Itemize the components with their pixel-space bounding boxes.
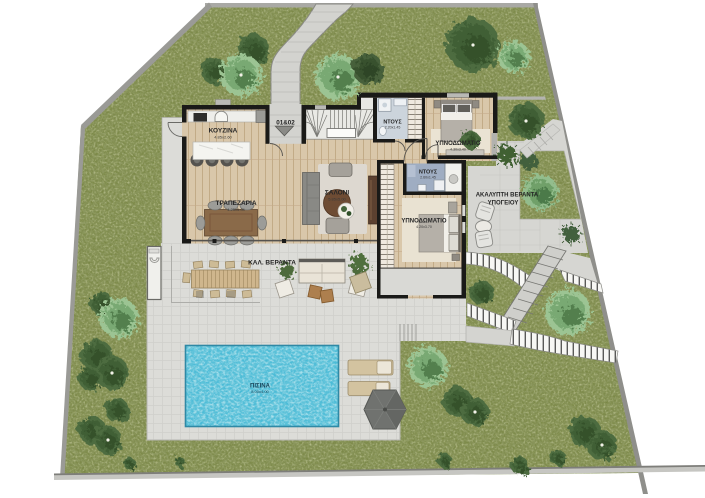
svg-text:4.30x3.40: 4.30x3.40 [450, 148, 466, 152]
svg-text:ΥΠΟΓΕΙΟΥ: ΥΠΟΓΕΙΟΥ [488, 201, 519, 207]
svg-text:ΣΑΛΟΝΙ: ΣΑΛΟΝΙ [325, 190, 350, 197]
svg-text:4.25x5.04: 4.25x5.04 [227, 207, 245, 212]
svg-text:4.20x3.70: 4.20x3.70 [416, 225, 432, 229]
svg-text:01&02: 01&02 [276, 120, 295, 127]
svg-text:ΥΠΝΟΔΩΜΑΤΙΟ: ΥΠΝΟΔΩΜΑΤΙΟ [435, 141, 480, 147]
svg-text:ΤΡΑΠΕΖΑΡΙΑ: ΤΡΑΠΕΖΑΡΙΑ [215, 200, 256, 207]
svg-text:ΑΚΑΛΥΠΤΗ ΒΕΡΑΝΤΑ: ΑΚΑΛΥΠΤΗ ΒΕΡΑΝΤΑ [476, 193, 539, 199]
svg-text:2.60x1.45: 2.60x1.45 [420, 176, 436, 180]
svg-text:8.00x4.00: 8.00x4.00 [251, 389, 269, 394]
svg-text:5.85x5.00: 5.85x5.00 [328, 197, 346, 202]
svg-text:2.20x1.45: 2.20x1.45 [385, 126, 401, 130]
svg-text:4.85x2.60: 4.85x2.60 [214, 135, 232, 140]
svg-text:ΚΑΛ. ΒΕΡΑΝΤΑ: ΚΑΛ. ΒΕΡΑΝΤΑ [248, 260, 296, 267]
svg-text:ΚΟΥΖΙΝΑ: ΚΟΥΖΙΝΑ [209, 128, 238, 135]
svg-text:ΥΠΝΟΔΩΜΑΤΙΟ: ΥΠΝΟΔΩΜΑΤΙΟ [401, 219, 446, 225]
